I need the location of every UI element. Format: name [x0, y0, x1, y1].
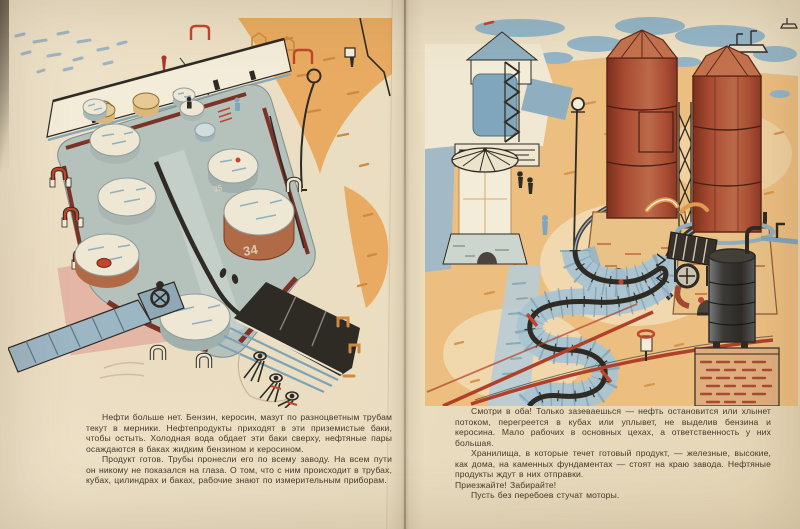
sky-speckles [16, 32, 126, 72]
brick-platform [695, 348, 779, 406]
left-page: 35 34 [0, 0, 403, 529]
paragraph: Хранилища, в которые течет готовый проду… [455, 448, 771, 480]
small-hut [345, 48, 355, 57]
paragraph: Продукт готов. Трубы пронесли его по все… [86, 454, 392, 486]
white-tank-large [98, 178, 156, 225]
white-tank-large [90, 124, 140, 164]
paragraph: Смотри в оба! Только зазеваешься — нефть… [455, 406, 771, 448]
paragraph: Приезжайте! Забирайте! [455, 480, 771, 491]
left-page-text: Нефти больше нет. Бензин, керосин, мазут… [86, 412, 392, 486]
white-tank-valve [75, 234, 139, 288]
right-page: Смотри в оба! Только зазеваешься — нефть… [403, 0, 800, 529]
paragraph: Нефти больше нет. Бензин, керосин, мазут… [86, 412, 392, 454]
book-spread-photo: 35 34 [0, 0, 800, 529]
tank-34: 34 [224, 189, 294, 260]
white-tank [180, 100, 204, 121]
ship-icon-small [781, 18, 797, 28]
white-tank [83, 99, 107, 121]
blue-tank-small [195, 123, 215, 142]
sketch-figures [238, 352, 298, 408]
right-page-text: Смотри в оба! Только зазеваешься — нефть… [455, 406, 771, 501]
tank-35: 35 [208, 149, 258, 194]
pencil-scribbles [100, 363, 144, 378]
red-valve-icon [97, 259, 111, 268]
right-illustration-oil-towers [425, 14, 798, 406]
tan-tank [133, 93, 159, 117]
left-illustration-tank-farm: 35 34 [8, 16, 400, 408]
paragraph: Пусть без перебоев стучат моторы. [455, 490, 771, 501]
